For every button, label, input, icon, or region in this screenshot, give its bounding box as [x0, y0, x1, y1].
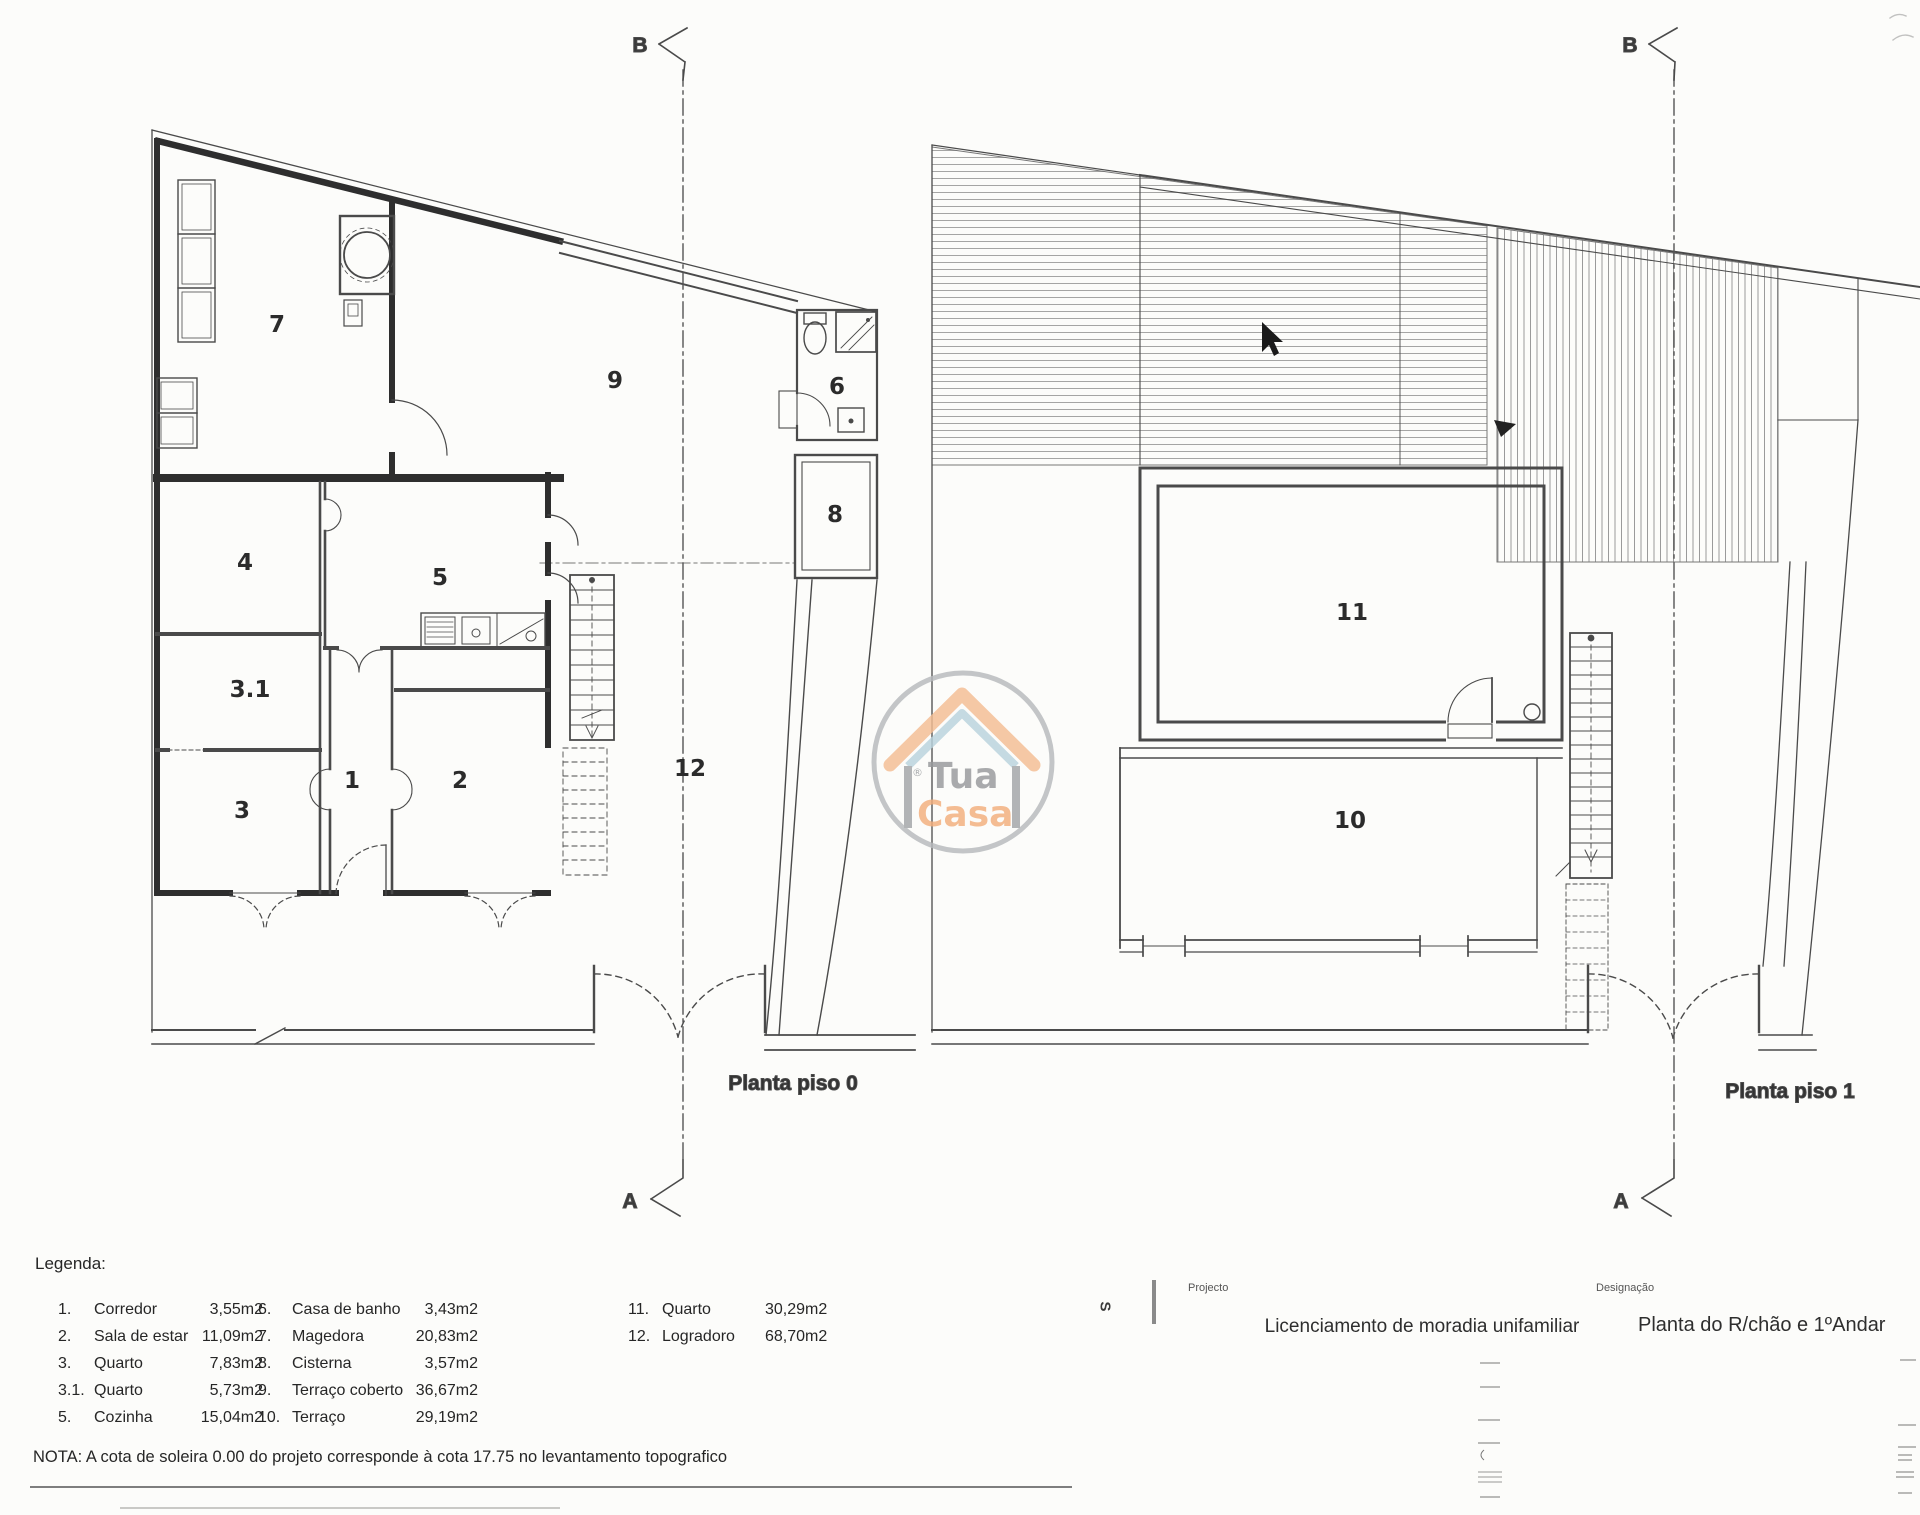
legend-num: 11. [628, 1296, 662, 1323]
legend-area: 36,67m2 [408, 1377, 478, 1404]
room-10-walls [1120, 748, 1562, 956]
legend-column-2: 6.Casa de banho3,43m2 7.Magedora20,83m2 … [258, 1296, 478, 1431]
legend-name: Quarto [662, 1296, 765, 1323]
note-text: NOTA: A cota de soleira 0.00 do projeto … [33, 1448, 727, 1467]
legend-row: 11.Quarto30,29m2 [628, 1296, 848, 1323]
section-marker-a-left: A [622, 1190, 637, 1213]
stairs-piso1 [1556, 633, 1612, 1030]
title-block-side-letter: S [1097, 1301, 1114, 1311]
legend-row: 8.Cisterna3,57m2 [258, 1350, 478, 1377]
legend-row: 9.Terraço coberto36,67m2 [258, 1377, 478, 1404]
legend-num: 2. [58, 1323, 94, 1350]
room-label-9: 9 [607, 368, 623, 394]
legend-row: 10.Terraço29,19m2 [258, 1404, 478, 1431]
legend-name: Magedora [292, 1323, 408, 1350]
logo-word-casa: Casa [917, 794, 1013, 835]
legend-row: 3.1.Quarto5,73m2 [58, 1377, 263, 1404]
section-marker-a-right: A [1613, 1190, 1628, 1213]
designation-label: Designação [1596, 1282, 1654, 1294]
legend-num: 7. [258, 1323, 292, 1350]
stairs-piso0 [563, 575, 614, 875]
room-label-5: 5 [432, 565, 448, 591]
project-label: Projecto [1188, 1282, 1228, 1294]
legend-name: Cisterna [292, 1350, 408, 1377]
legend-area: 68,70m2 [765, 1323, 827, 1350]
legend-num: 9. [258, 1377, 292, 1404]
legend-name: Terraço [292, 1404, 408, 1431]
room-label-12: 12 [674, 756, 706, 782]
kitchen-counter [421, 613, 545, 648]
legend: Legenda: 1.Corredor3,55m2 2.Sala de esta… [30, 1252, 910, 1452]
section-marker-b-right: B [1622, 34, 1637, 57]
legend-name: Corredor [94, 1296, 191, 1323]
legend-area: 11,09m2 [191, 1323, 263, 1350]
tuacasa-logo: ® Tua Casa [874, 673, 1052, 851]
legend-name: Quarto [94, 1377, 191, 1404]
legend-area: 15,04m2 [191, 1404, 263, 1431]
designation-title: Planta do R/chão e 1ºAndar [1638, 1314, 1885, 1337]
caption-piso1: Planta piso 1 [1725, 1080, 1855, 1103]
legend-num: 6. [258, 1296, 292, 1323]
legend-area: 3,55m2 [191, 1296, 263, 1323]
logo-word-tua: Tua [928, 756, 999, 797]
title-block-divider [1152, 1280, 1156, 1324]
legend-name: Casa de banho [292, 1296, 408, 1323]
caption-piso0: Planta piso 0 [728, 1072, 858, 1095]
legend-row: 6.Casa de banho3,43m2 [258, 1296, 478, 1323]
project-title: Licenciamento de moradia unifamiliar [1252, 1316, 1592, 1338]
room-label-8: 8 [827, 502, 843, 528]
room-label-1: 1 [344, 768, 360, 794]
legend-area: 30,29m2 [765, 1296, 827, 1323]
oven-chimney [340, 216, 394, 326]
plan-piso0-drawing: B A 7 9 6 8 4 5 3.1 3 1 2 12 Planta piso… [152, 28, 915, 1216]
legend-num: 3. [58, 1350, 94, 1377]
legend-row: 3.Quarto7,83m2 [58, 1350, 263, 1377]
legend-num: 3.1. [58, 1377, 94, 1404]
legend-num: 8. [258, 1350, 292, 1377]
legend-name: Logradoro [662, 1323, 765, 1350]
section-marker-b-left: B [632, 34, 647, 57]
legend-area: 3,57m2 [408, 1350, 478, 1377]
room-label-7: 7 [269, 312, 285, 338]
legend-area: 3,43m2 [408, 1296, 478, 1323]
legend-area: 29,19m2 [408, 1404, 478, 1431]
legend-row: 12.Logradoro68,70m2 [628, 1323, 848, 1350]
cabinets [157, 180, 215, 448]
room-label-10: 10 [1334, 808, 1366, 834]
room-label-11: 11 [1336, 600, 1368, 626]
legend-area: 7,83m2 [191, 1350, 263, 1377]
plan-piso1-drawing: B A 11 10 Planta piso 1 [932, 14, 1920, 1216]
room-label-31: 3.1 [230, 677, 271, 703]
legend-column-3: 11.Quarto30,29m2 12.Logradoro68,70m2 [628, 1296, 848, 1350]
legend-area: 20,83m2 [408, 1323, 478, 1350]
legend-num: 5. [58, 1404, 94, 1431]
legend-row: 5.Cozinha15,04m2 [58, 1404, 263, 1431]
legend-row: 2.Sala de estar11,09m2 [58, 1323, 263, 1350]
toilet-icon [804, 313, 826, 354]
legend-name: Terraço coberto [292, 1377, 408, 1404]
legend-name: Cozinha [94, 1404, 191, 1431]
room-label-6: 6 [829, 374, 845, 400]
room-label-4: 4 [237, 550, 253, 576]
legend-column-1: 1.Corredor3,55m2 2.Sala de estar11,09m2 … [58, 1296, 263, 1431]
logo-reg-mark: ® [912, 766, 923, 779]
legend-num: 1. [58, 1296, 94, 1323]
legend-name: Quarto [94, 1350, 191, 1377]
legend-area: 5,73m2 [191, 1377, 263, 1404]
legend-name: Sala de estar [94, 1323, 191, 1350]
sink-icon [838, 408, 864, 432]
legend-num: 12. [628, 1323, 662, 1350]
shower-icon [836, 312, 876, 352]
section-line-piso1 [1642, 28, 1677, 1216]
section-line-piso0 [651, 28, 687, 1216]
room-label-3: 3 [234, 798, 250, 824]
legend-num: 10. [258, 1404, 292, 1431]
legend-title: Legenda: [35, 1254, 106, 1274]
legend-row: 1.Corredor3,55m2 [58, 1296, 263, 1323]
legend-row: 7.Magedora20,83m2 [258, 1323, 478, 1350]
room-label-2: 2 [452, 768, 468, 794]
